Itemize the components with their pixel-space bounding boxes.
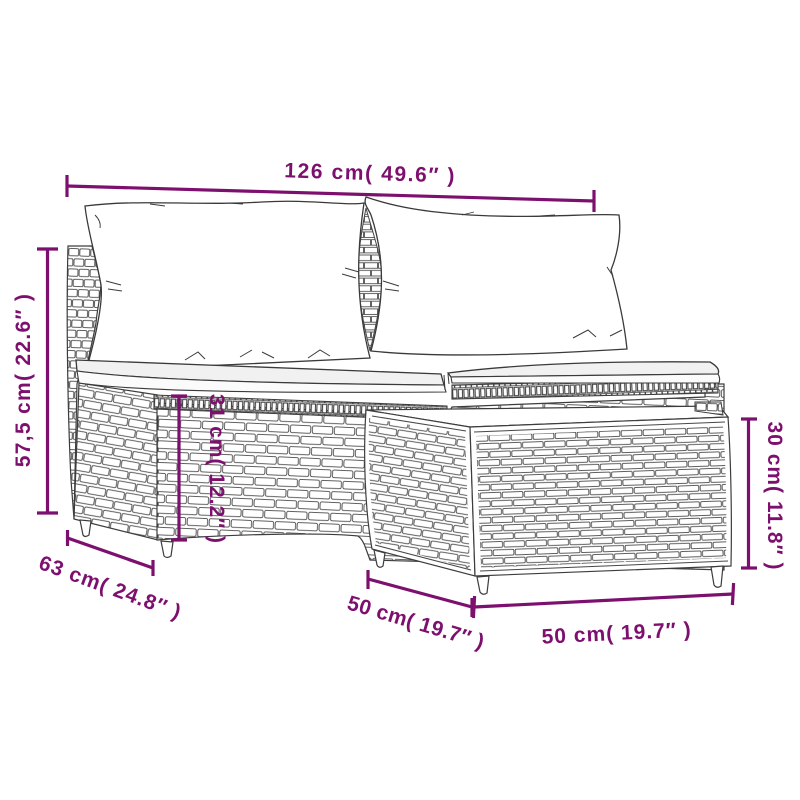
svg-text:31 cm( 12.2″ ): 31 cm( 12.2″ ) (205, 394, 228, 544)
svg-text:57,5 cm( 22.6″ ): 57,5 cm( 22.6″ ) (12, 293, 35, 467)
svg-text:30 cm( 11.8″ ): 30 cm( 11.8″ ) (763, 422, 786, 571)
